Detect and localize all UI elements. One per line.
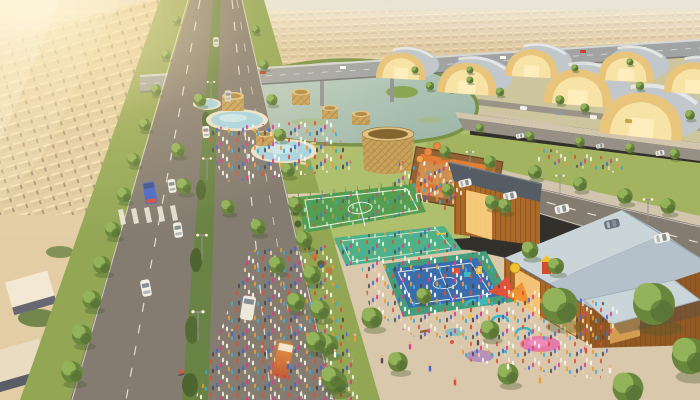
aerial-park-render — [0, 0, 700, 400]
sun-glow — [0, 0, 700, 400]
scene-canvas — [0, 0, 700, 400]
